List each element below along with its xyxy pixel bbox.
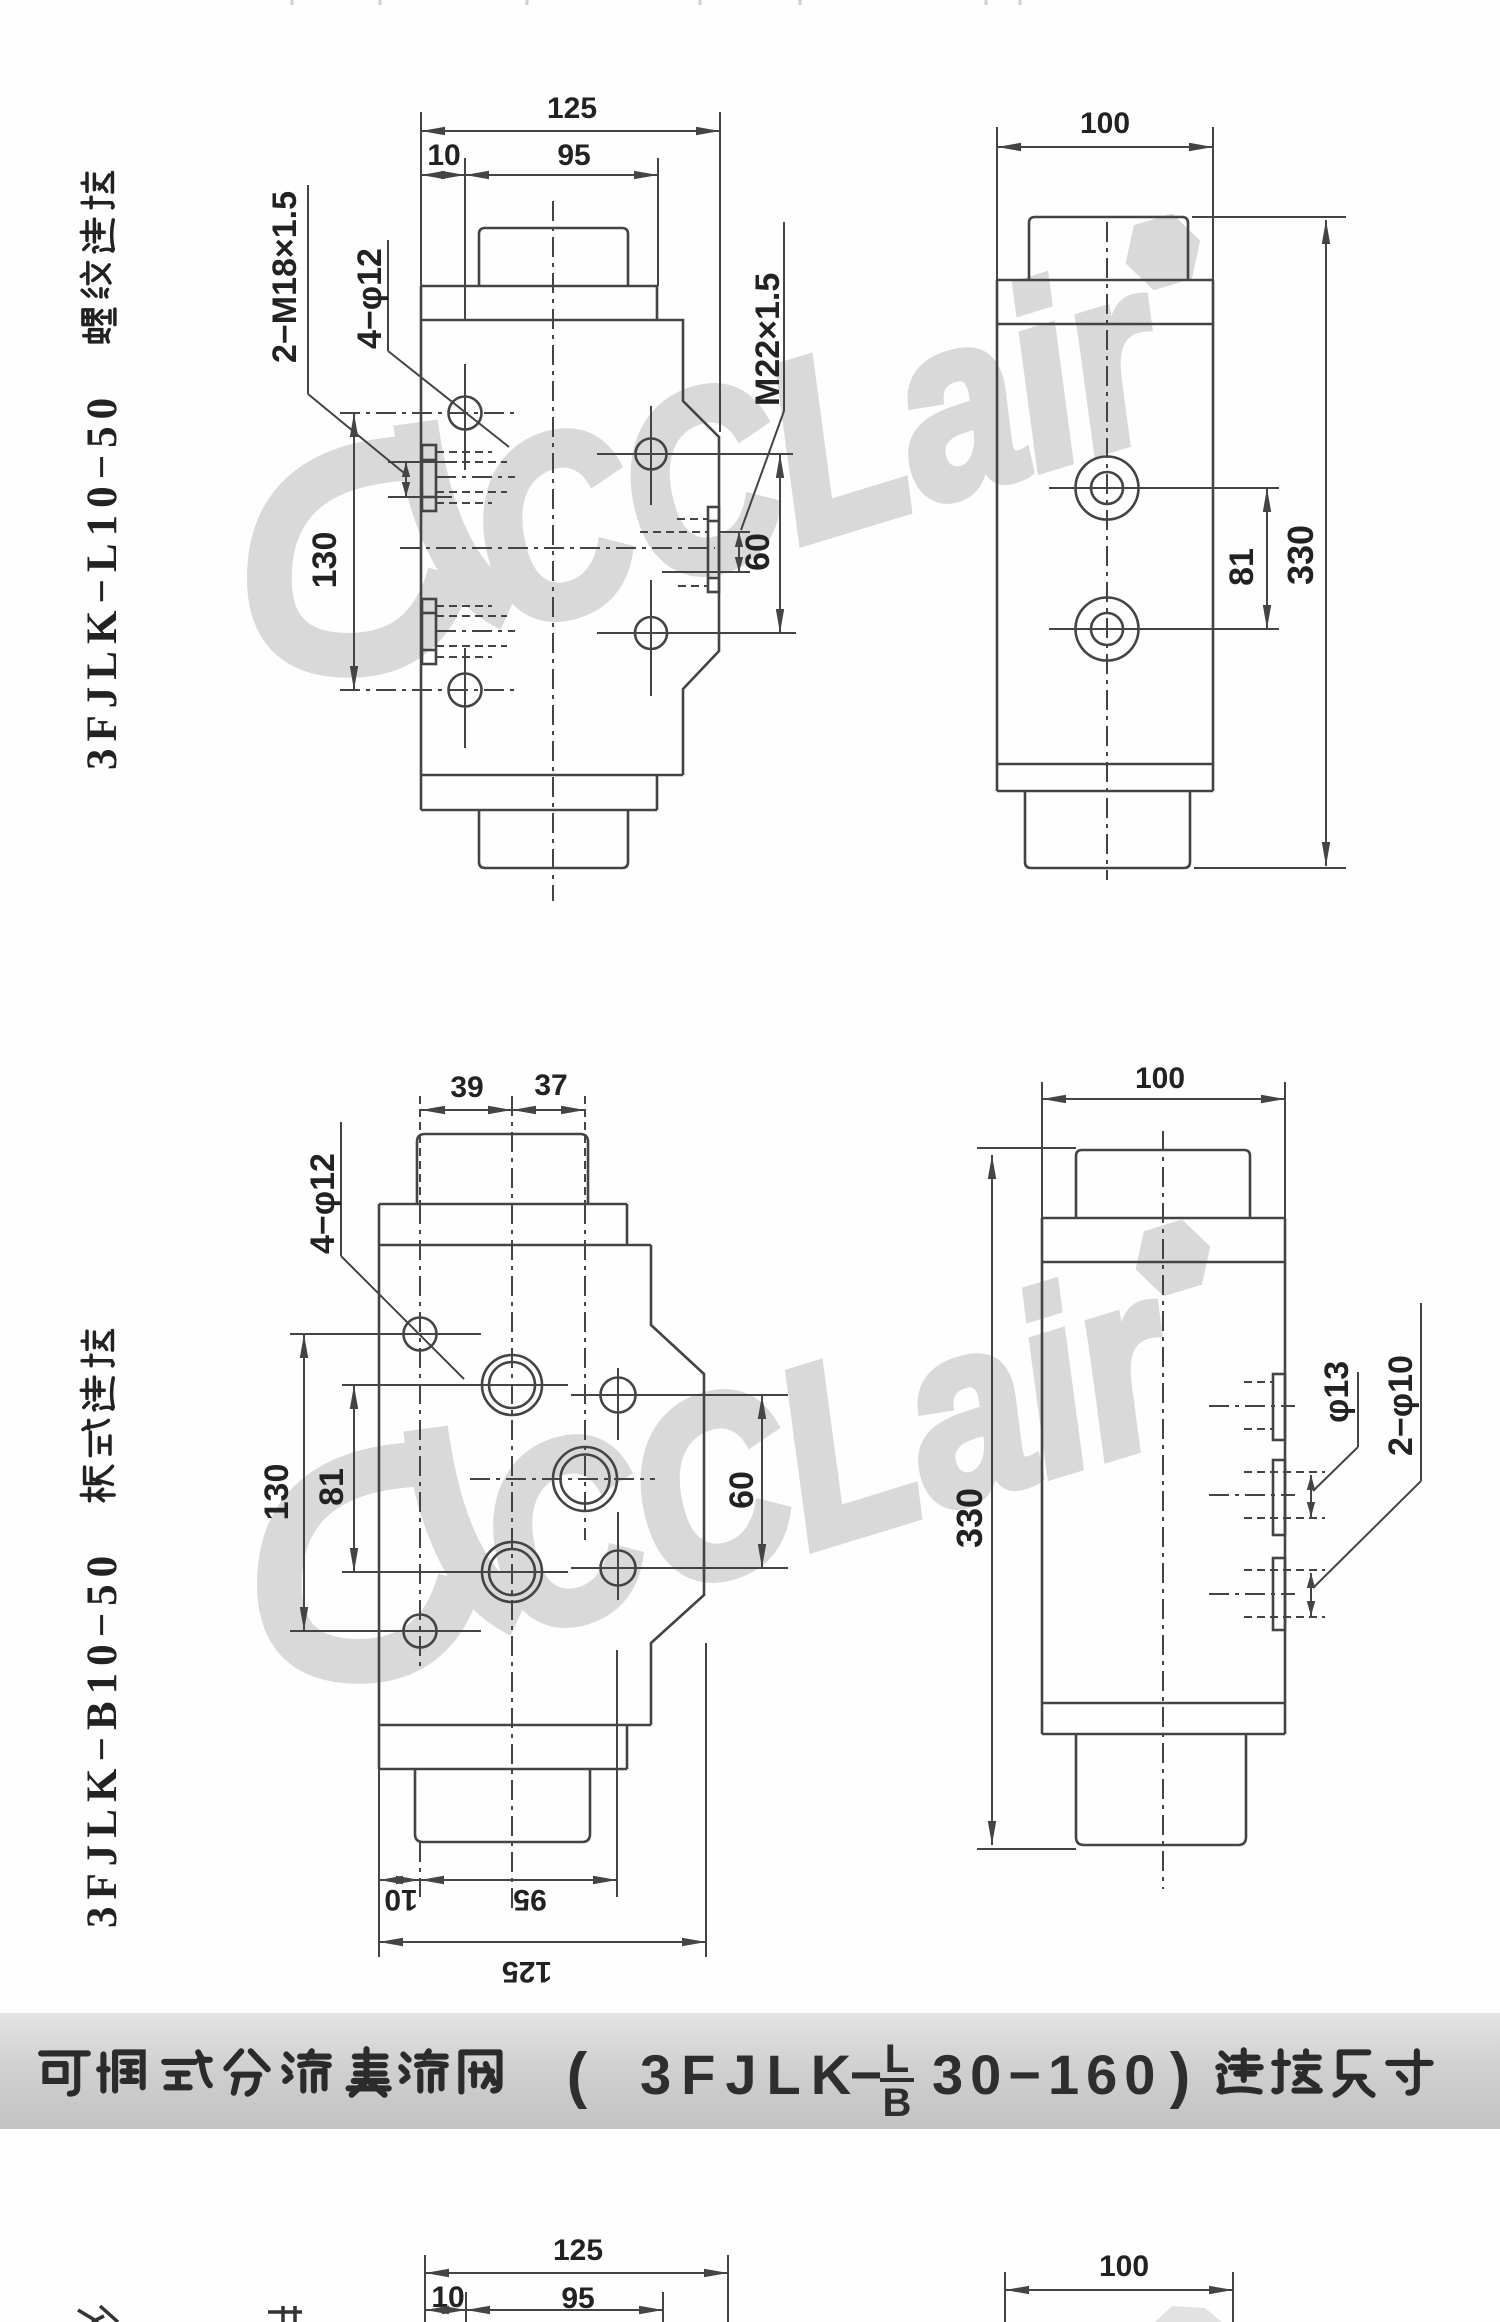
svg-text:100: 100 <box>1080 107 1130 140</box>
svg-text:−: − <box>850 2043 883 2106</box>
svg-text:60: 60 <box>723 1471 761 1509</box>
svg-text:3FJLK: 3FJLK <box>640 2043 861 2106</box>
svg-text:3FJLK−L10−50: 3FJLK−L10−50 <box>79 391 126 770</box>
svg-text:M22×1.5: M22×1.5 <box>749 273 787 406</box>
svg-text:2−M18×1.5: 2−M18×1.5 <box>266 191 304 363</box>
svg-text:330: 330 <box>949 1488 990 1548</box>
svg-text:(: ( <box>567 2041 588 2110</box>
svg-text:125: 125 <box>547 92 597 125</box>
svg-text:125: 125 <box>502 1955 552 1988</box>
svg-text:4−φ12: 4−φ12 <box>351 248 389 349</box>
svg-text:φ13: φ13 <box>1318 1361 1356 1423</box>
svg-text:60: 60 <box>739 533 777 571</box>
svg-text:4−φ12: 4−φ12 <box>304 1153 342 1254</box>
svg-text:330: 330 <box>1280 525 1321 585</box>
svg-text:125: 125 <box>553 2234 603 2267</box>
svg-text:37: 37 <box>534 1069 567 1102</box>
svg-text:10: 10 <box>384 1883 417 1916</box>
svg-text:81: 81 <box>1223 548 1261 586</box>
svg-text:100: 100 <box>1099 2250 1149 2283</box>
svg-text:95: 95 <box>513 1883 546 1916</box>
svg-text:): ) <box>1170 2041 1191 2110</box>
svg-text:81: 81 <box>313 1468 351 1506</box>
svg-text:10: 10 <box>427 139 460 172</box>
svg-text:L: L <box>885 2037 909 2081</box>
svg-text:30−160: 30−160 <box>932 2043 1162 2106</box>
svg-text:100: 100 <box>1135 1062 1185 1095</box>
svg-text:130: 130 <box>258 1464 296 1521</box>
svg-text:3FJLK−B10−50: 3FJLK−B10−50 <box>79 1549 126 1928</box>
svg-text:39: 39 <box>450 1071 483 1104</box>
svg-text:B: B <box>883 2081 912 2125</box>
svg-text:95: 95 <box>557 139 590 172</box>
svg-text:2−φ10: 2−φ10 <box>1382 1355 1420 1456</box>
svg-text:130: 130 <box>306 532 344 589</box>
